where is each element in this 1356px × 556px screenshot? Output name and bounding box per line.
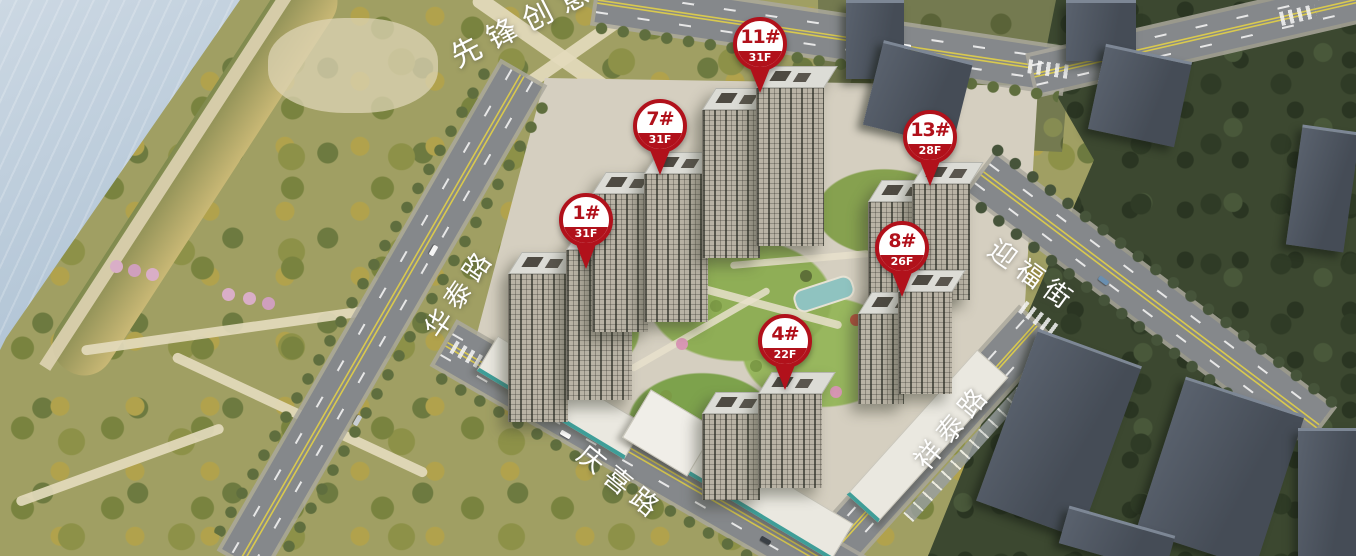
marker-tail	[750, 68, 770, 93]
marker-tail	[650, 150, 670, 175]
marker-tail	[892, 272, 912, 297]
blossom-trees	[222, 288, 235, 301]
marker-pin-7[interactable]: 7# 31F	[633, 99, 687, 175]
park-plaza	[268, 18, 438, 113]
marker-tail	[920, 161, 940, 186]
aerial-site-plan: 先锋创意 华泰路 迎福街 祥泰路 庆喜路 1# 31F 4# 22F 7# 31…	[0, 0, 1356, 556]
building-floors: 22F	[762, 348, 808, 364]
building-floors: 31F	[737, 51, 783, 67]
marker-circle: 4# 22F	[758, 314, 812, 368]
building-floors: 31F	[637, 133, 683, 149]
marker-pin-1[interactable]: 1# 31F	[559, 193, 613, 269]
marker-tail	[775, 365, 795, 390]
marker-circle: 11# 31F	[733, 17, 787, 71]
building-floors: 31F	[563, 227, 609, 243]
building-floors: 26F	[879, 255, 925, 271]
building-number: 7#	[637, 103, 683, 133]
marker-pin-11[interactable]: 11# 31F	[733, 17, 787, 93]
tower-11a	[702, 88, 760, 258]
building-floors: 28F	[907, 144, 953, 160]
marker-circle: 7# 31F	[633, 99, 687, 153]
marker-pin-8[interactable]: 8# 26F	[875, 221, 929, 297]
tower-7b	[644, 152, 708, 322]
marker-pin-4[interactable]: 4# 22F	[758, 314, 812, 390]
marker-circle: 8# 26F	[875, 221, 929, 275]
tower-4a	[702, 392, 760, 500]
marker-tail	[576, 244, 596, 269]
context-building	[1088, 44, 1192, 147]
marker-circle: 1# 31F	[559, 193, 613, 247]
context-building	[1298, 428, 1356, 556]
building-number: 13#	[907, 114, 953, 144]
marker-pin-13[interactable]: 13# 28F	[903, 110, 957, 186]
tower-1a	[508, 252, 568, 422]
marker-circle: 13# 28F	[903, 110, 957, 164]
building-number: 1#	[563, 197, 609, 227]
building-number: 4#	[762, 318, 808, 348]
tower-11b	[756, 66, 824, 246]
building-number: 8#	[879, 225, 925, 255]
park-path	[15, 423, 225, 508]
building-number: 11#	[737, 21, 783, 51]
